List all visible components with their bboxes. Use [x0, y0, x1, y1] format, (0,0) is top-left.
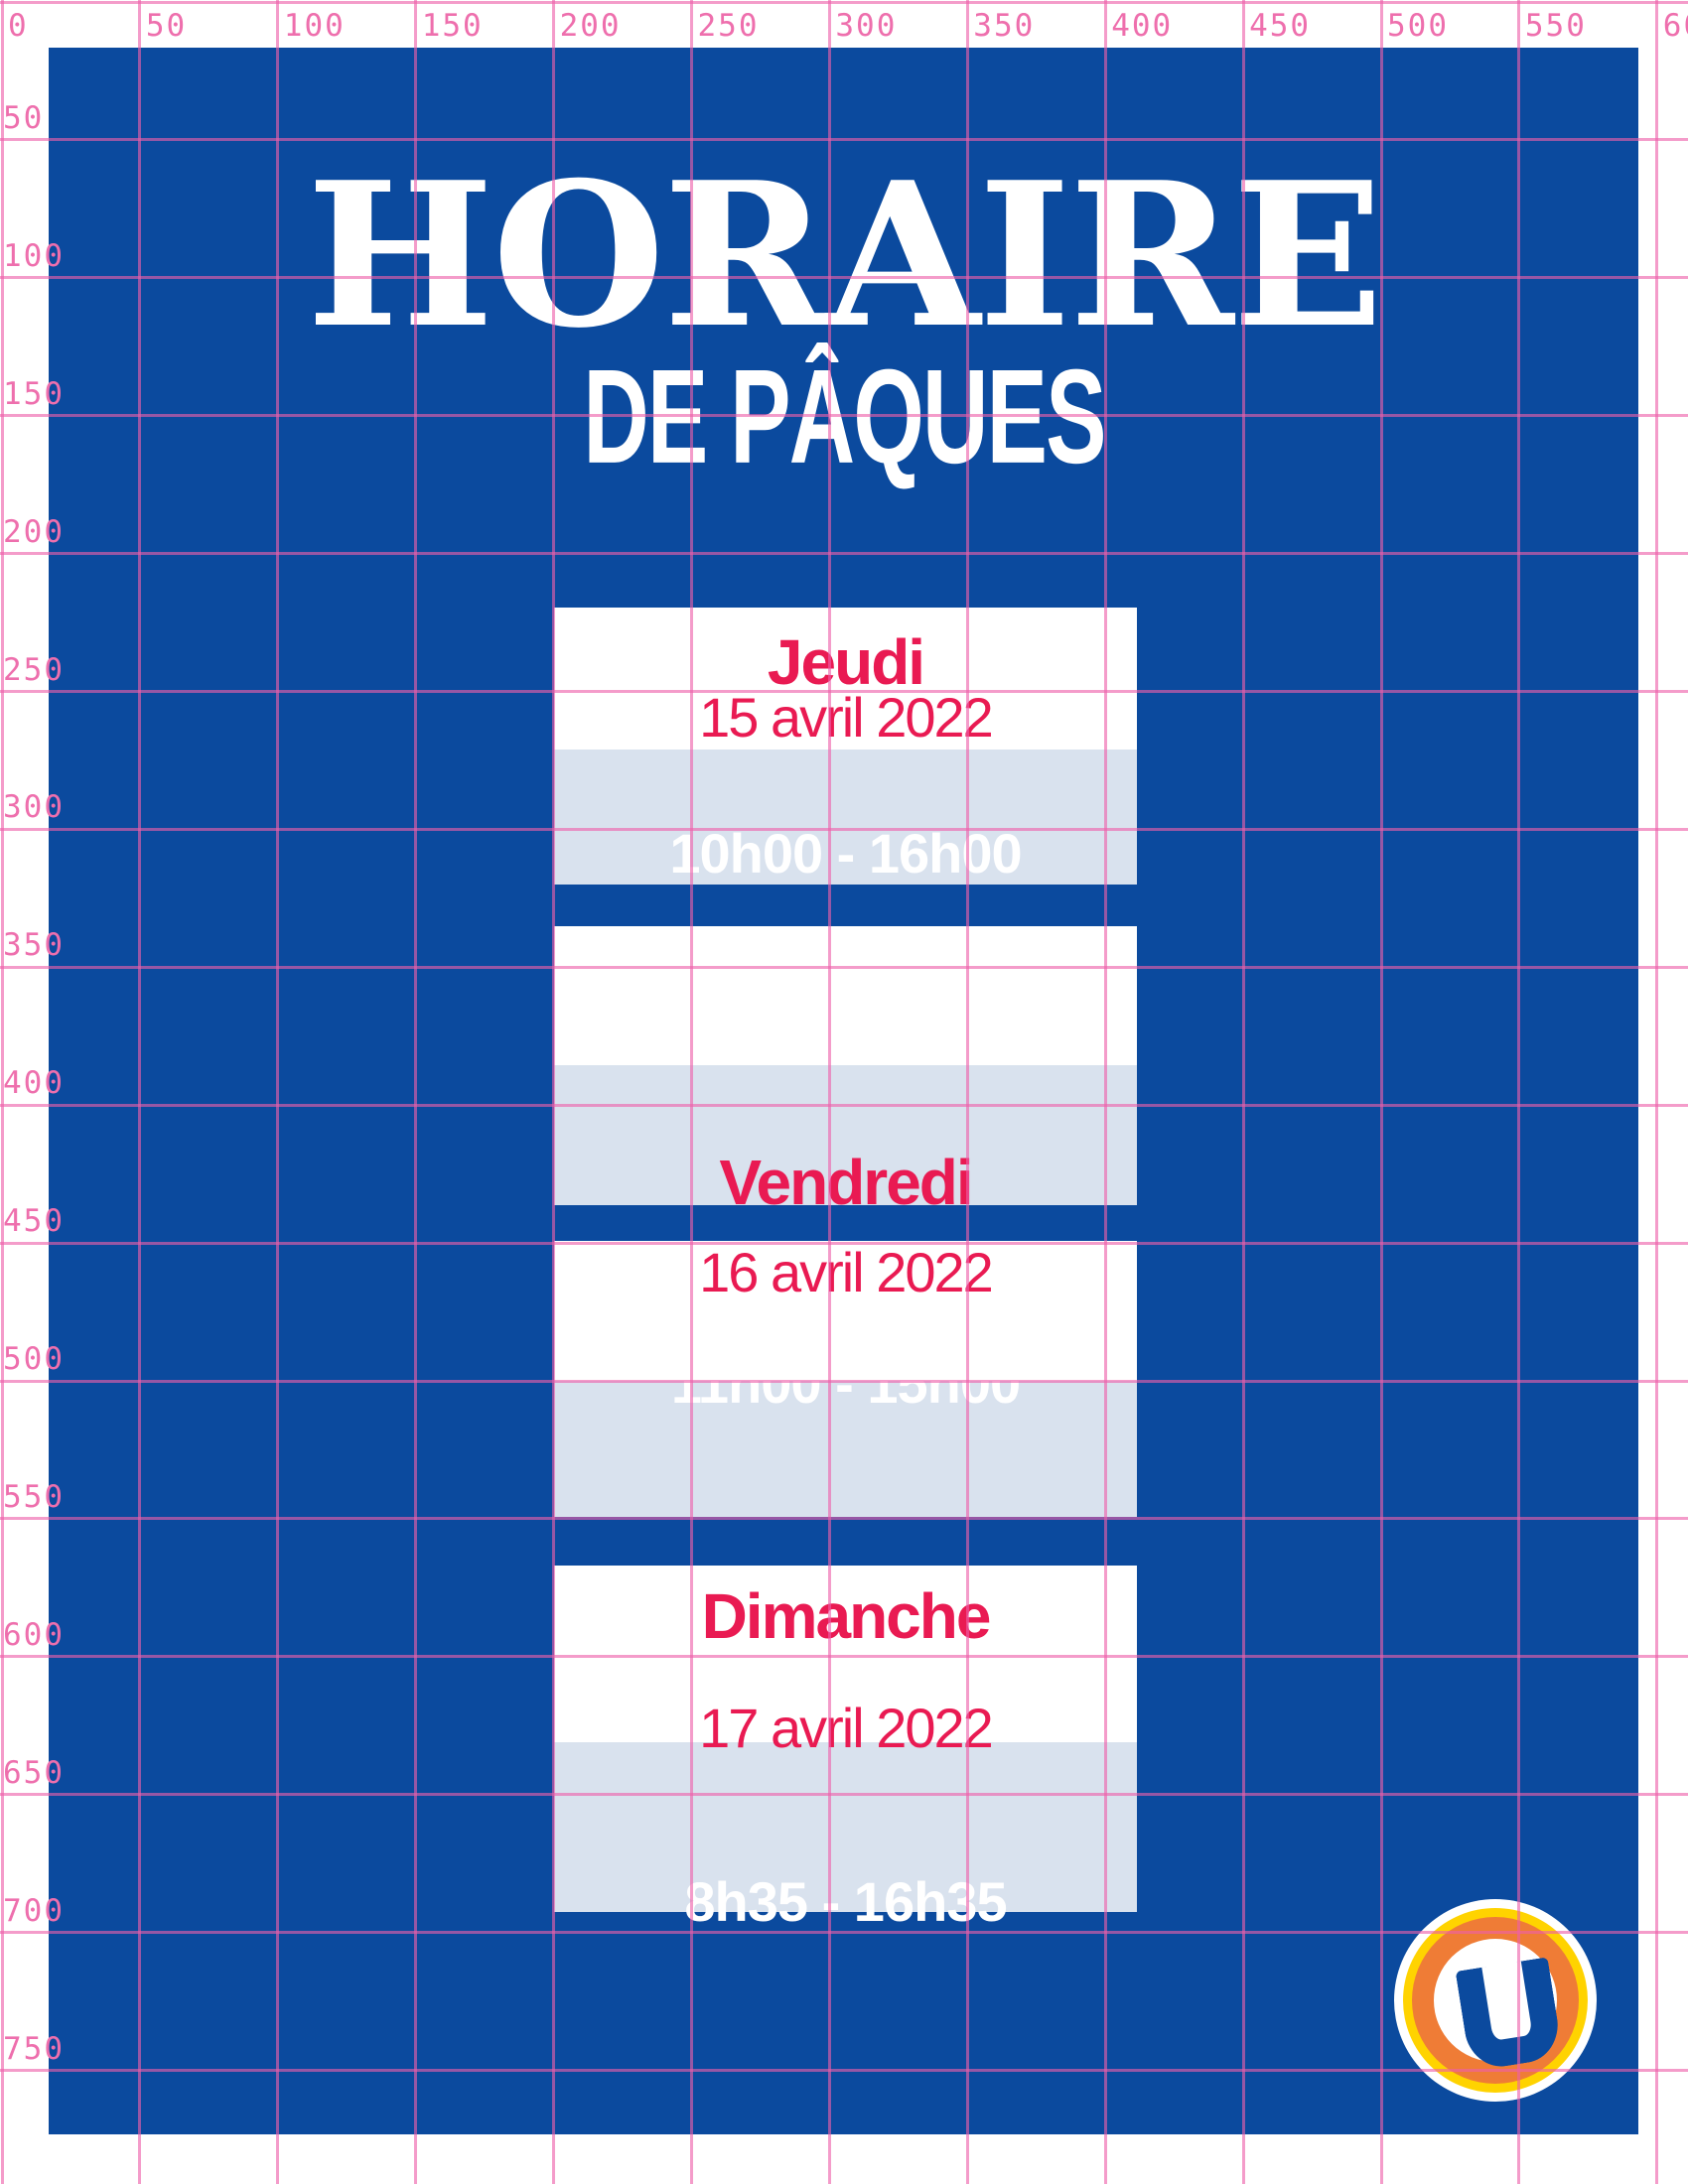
ruler-label-top: 300 — [835, 8, 897, 44]
ruler-label-top: 250 — [698, 8, 760, 44]
sunday-hours-label: 8h35 - 16h35 — [554, 1862, 1137, 1942]
ruler-label-top: 200 — [560, 8, 622, 44]
poster-subtitle: DE PÂQUES — [296, 317, 1392, 518]
ruler-label-top: 0 — [8, 8, 29, 44]
ruler-label-top: 150 — [422, 8, 484, 44]
thursday-hours-label: 10h00 - 16h00 — [554, 814, 1137, 893]
friday-day-label: Vendredi — [554, 1143, 1137, 1222]
ruler-label-top: 500 — [1387, 8, 1449, 44]
ruler-label-top: 350 — [973, 8, 1035, 44]
logo-yellow-ring — [1403, 1908, 1588, 2093]
grid-line-horizontal — [0, 1, 1688, 4]
ruler-label-top: 450 — [1249, 8, 1311, 44]
friday-hours-label: 11h00 - 15h00 — [554, 1344, 1137, 1424]
grid-line-vertical — [1655, 0, 1658, 2184]
design-canvas: HORAIRE DE PÂQUES Jeudi 15 avril 2022 10… — [0, 0, 1688, 2184]
thursday-date-label: 15 avril 2022 — [554, 678, 1137, 757]
ruler-label-top: 400 — [1111, 8, 1173, 44]
card-friday-white — [554, 926, 1137, 1065]
logo-u-glyph — [1456, 1957, 1564, 2071]
friday-date-label: 16 avril 2022 — [554, 1233, 1137, 1312]
logo-white-disc — [1434, 1939, 1557, 2062]
sunday-day-label: Dimanche — [554, 1576, 1137, 1656]
ruler-label-top: 600 — [1663, 8, 1688, 44]
sunday-date-label: 17 avril 2022 — [554, 1689, 1137, 1768]
ruler-label-top: 50 — [146, 8, 187, 44]
ruler-label-top: 100 — [284, 8, 346, 44]
logo-orange-ring — [1412, 1917, 1579, 2084]
grid-line-vertical — [1, 0, 4, 2184]
ruler-label-left: 50 — [3, 100, 44, 136]
brand-logo — [1394, 1899, 1597, 2102]
ruler-label-top: 550 — [1525, 8, 1587, 44]
